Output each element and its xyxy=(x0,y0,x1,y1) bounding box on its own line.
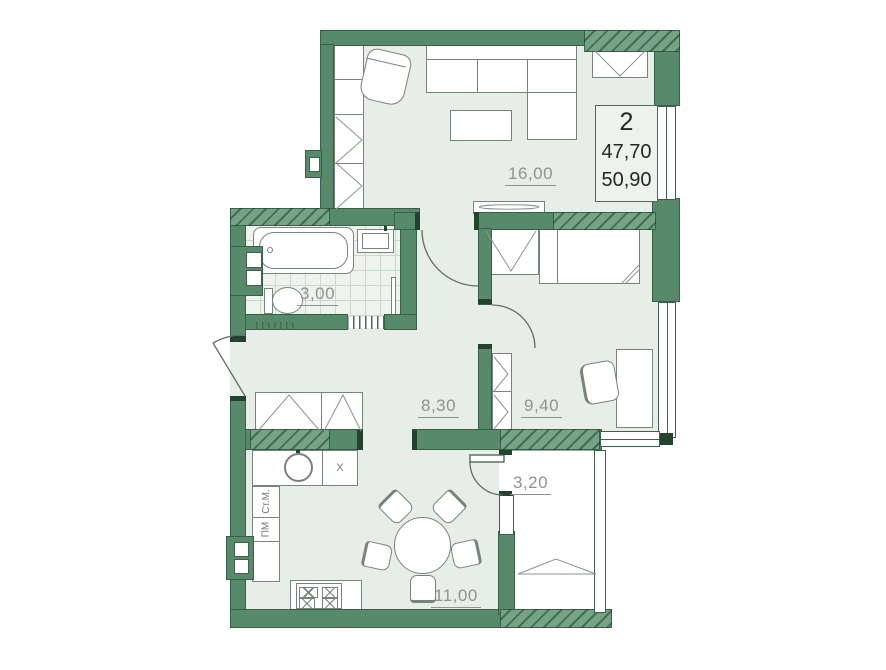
wall-bedroom-left-upper xyxy=(478,228,492,305)
bedroom-door-opening xyxy=(478,303,492,349)
wall-cap xyxy=(412,430,417,450)
hall-wardrobe xyxy=(255,392,363,433)
wall-cap xyxy=(499,450,512,455)
bedroom-corner-window xyxy=(600,431,660,447)
bathroom-area-label: 3,00 xyxy=(297,284,338,306)
wall-cap xyxy=(230,336,246,342)
wall-living-bedroom-hatched xyxy=(553,212,656,230)
side-wardrobe-divider xyxy=(492,391,512,392)
kitchen-area-label: 11,00 xyxy=(431,586,481,608)
burner-icon xyxy=(322,587,338,598)
wall-bedroom-left-lower xyxy=(478,346,492,432)
wall-living-left xyxy=(320,44,334,216)
wall-right-mid xyxy=(652,198,680,302)
wall-left-lower xyxy=(230,397,246,627)
sofa-seat-divider xyxy=(527,59,528,93)
bathroom-sink-basin xyxy=(362,233,389,249)
washing-machine-label: Ст.М. xyxy=(252,486,280,517)
dishwasher-label: ПМ xyxy=(252,517,280,541)
bathroom-door-threshold xyxy=(347,316,384,329)
burner-icon xyxy=(322,598,338,609)
kitchen-opening xyxy=(362,429,414,451)
wall-top xyxy=(320,30,588,46)
wall-cap xyxy=(357,430,363,450)
living-area-value: 47,70 xyxy=(596,138,657,166)
sofa-back xyxy=(426,45,577,60)
bed-pillow-line xyxy=(557,228,558,284)
burner-icon xyxy=(299,598,315,609)
vent-opening xyxy=(246,252,262,268)
hall-area-label: 8,30 xyxy=(418,396,459,418)
vent-opening xyxy=(234,542,249,557)
vent-opening xyxy=(234,559,249,574)
kitchen-sink-icon xyxy=(284,453,313,482)
hall-wardrobe-divider xyxy=(321,392,322,433)
wall-bottom xyxy=(230,609,514,628)
sofa-chaise xyxy=(527,92,577,140)
wall-bathroom-right xyxy=(400,224,417,317)
wall-cap xyxy=(478,299,492,304)
wall-hatched xyxy=(250,429,330,450)
desk-chair xyxy=(579,359,621,405)
wall-cap xyxy=(474,212,479,230)
bathtub-drain xyxy=(267,247,273,253)
living-room-area-label: 16,00 xyxy=(505,164,556,186)
counter-divider xyxy=(252,541,280,542)
balcony-window xyxy=(499,495,514,535)
bedroom-area-label: 9,40 xyxy=(521,396,562,418)
wall-cap xyxy=(415,212,420,230)
balcony-glazing xyxy=(594,450,606,613)
sofa-seats xyxy=(426,59,577,93)
apartment-info-box: 2 47,70 50,90 xyxy=(595,105,658,202)
dining-table xyxy=(394,517,451,574)
towel-rail xyxy=(391,277,396,315)
shaft-vent xyxy=(309,157,320,172)
wardrobe-divider xyxy=(334,114,364,115)
corner-window-cap xyxy=(660,433,673,445)
fridge-label: Х xyxy=(322,450,358,486)
floor-plan: 16,00 3,00 8,30 9,40 3,20 11,00 2 47,70 … xyxy=(0,0,886,670)
total-area-value: 50,90 xyxy=(596,166,657,194)
wall-balcony-pier xyxy=(498,531,515,615)
dining-chair xyxy=(361,540,394,571)
threshold-ticks xyxy=(256,322,296,330)
entrance-opening xyxy=(230,341,246,397)
desk xyxy=(616,349,653,428)
living-wardrobe xyxy=(334,45,364,213)
wall-bathroom-top-hatched xyxy=(230,208,330,226)
burner-icon xyxy=(299,587,318,598)
wall-cap xyxy=(230,396,246,401)
wardrobe-divider xyxy=(334,79,364,80)
wall-hatched xyxy=(500,429,600,450)
sofa-seat-divider xyxy=(477,59,478,93)
tv-stand xyxy=(592,48,648,78)
wardrobe-divider xyxy=(334,163,364,164)
wall-bathroom-bottom-right xyxy=(384,314,417,330)
vent-opening xyxy=(246,270,262,286)
bed xyxy=(539,228,640,284)
living-door-opening xyxy=(419,212,478,231)
living-window xyxy=(656,106,676,200)
balcony-area-label: 3,20 xyxy=(510,473,551,495)
coffee-table xyxy=(450,110,512,141)
bedroom-window xyxy=(658,302,676,438)
wall-cap xyxy=(478,344,492,349)
rooms-count: 2 xyxy=(596,106,657,138)
wall-top-right-hatched xyxy=(584,30,680,52)
